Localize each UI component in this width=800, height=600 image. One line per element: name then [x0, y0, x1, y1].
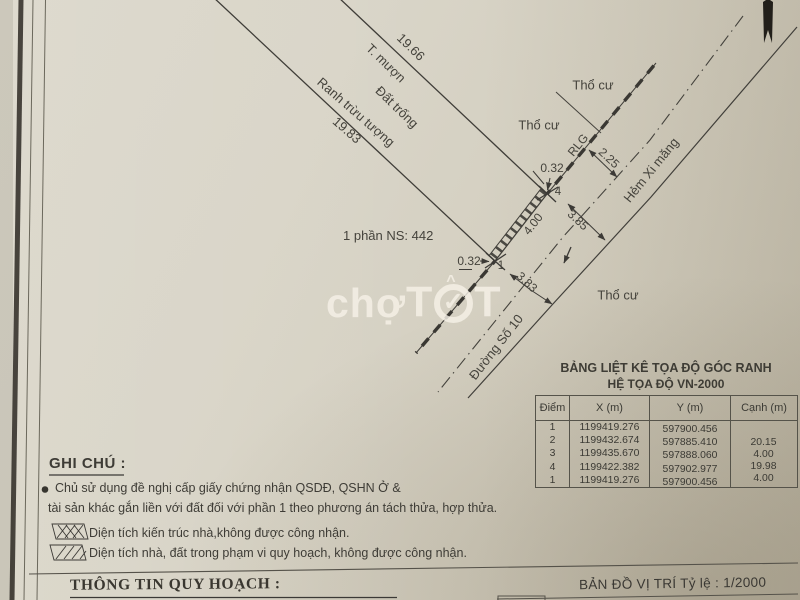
notes-heading: GHI CHÚ :	[49, 455, 126, 472]
frame-border-bottom	[29, 563, 798, 574]
road-direction-arrow	[564, 247, 571, 263]
table-header-cell: Điểm	[536, 396, 570, 421]
table-title-line2: HỆ TỌA ĐỘ VN-2000	[535, 377, 797, 391]
table-title-line1: BẢNG LIỆT KÊ TỌA ĐỘ GÓC RANH	[535, 361, 797, 375]
edge-length-values: 20.154.0019.984.00	[730, 430, 797, 492]
planning-info-heading: THÔNG TIN QUY HOẠCH :	[70, 575, 281, 594]
boundary-line-a	[337, 0, 547, 194]
edge-length-value: 4.00	[730, 449, 797, 460]
edge-length-value: 20.15	[730, 437, 797, 448]
map-scale-label: BẢN ĐỒ VỊ TRÍ Tỷ lệ : 1/2000	[579, 575, 766, 593]
paper-dark-edge	[12, 0, 21, 600]
chotot-watermark: chợ T ^ ✓ T	[326, 281, 502, 324]
table-header-row: ĐiểmX (m)Y (m)Cạnh (m)	[536, 396, 798, 421]
point-label-1: 1	[498, 260, 504, 272]
edge-length-value: 19.98	[730, 461, 797, 472]
table-header-cell: X (m)	[570, 396, 650, 421]
edge-length-value: 4.00	[730, 473, 797, 484]
frame-border-inner	[37, 0, 46, 600]
offset-label-top: 0.32	[540, 161, 563, 175]
check-icon: ✓	[443, 287, 465, 317]
road-centerline	[438, 16, 743, 392]
legend-crosshatch-text: Diện tích kiến trúc nhà,không được công …	[89, 526, 349, 540]
frame-border-outer	[24, 0, 33, 600]
land-use-label-2: Thổ cư	[518, 118, 559, 133]
legend-diagonal-text: Diện tích nhà, đất trong phạm vi quy hoạ…	[89, 546, 467, 560]
table-header-cell: Y (m)	[650, 396, 731, 421]
road-far-edge	[468, 27, 797, 398]
table-header-cell: Cạnh (m)	[731, 396, 798, 421]
north-arrow-icon	[763, 0, 773, 43]
parcel-id-label: 1 phần NS: 442	[343, 228, 433, 243]
crosshatch-swatch-icon	[52, 524, 88, 539]
point-label-4: 4	[555, 186, 561, 198]
survey-photo: 19.66 T. mượn Đất trống Ranh trừu tượng …	[0, 0, 800, 600]
diagonal-hatch-swatch-icon	[50, 545, 86, 560]
watermark-text: chợ	[326, 283, 406, 324]
parcel-separator-line	[556, 92, 601, 133]
land-use-label-1: Thổ cư	[572, 78, 613, 93]
notes-bullet-line1: Chủ sử dụng đề nghị cấp giấy chứng nhận …	[55, 481, 401, 495]
offset-label-bottom: 0.32	[457, 254, 480, 268]
notes-bullet-line2: tài sản khác gắn liền với đất đối với ph…	[48, 501, 497, 515]
land-use-label-3: Thổ cư	[597, 288, 638, 303]
check-circle-icon: ^ ✓	[434, 284, 473, 323]
bullet-icon	[42, 486, 49, 493]
